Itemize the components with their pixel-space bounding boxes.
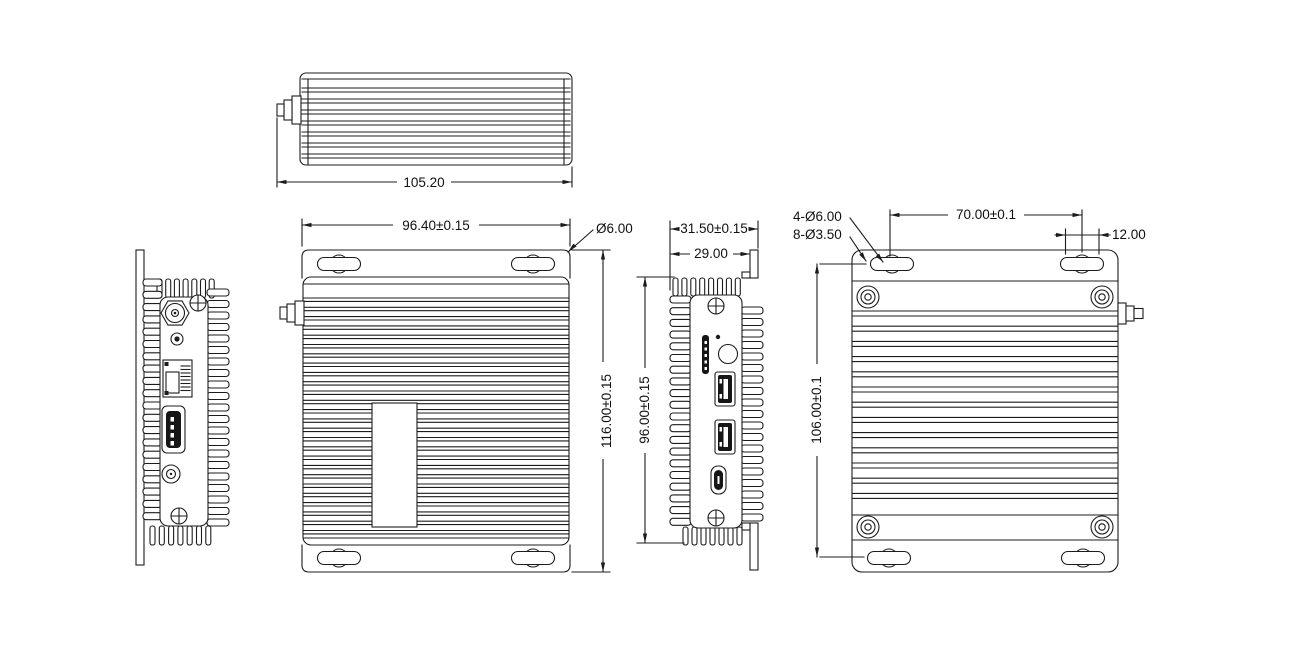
mounting-bracket-tab [750, 523, 758, 570]
antenna-connector-icon [277, 96, 301, 124]
antenna-connector-icon [280, 301, 304, 325]
dim-front-width: 96.40±0.15 [402, 218, 469, 233]
chassis-body [300, 73, 572, 165]
ethernet-port-icon [163, 360, 192, 397]
dim-side-depth-overall: 31.50±0.15 [680, 221, 747, 236]
dim-hole-spacing-horizontal: 70.00±0.1 [956, 207, 1016, 222]
label-area [372, 403, 417, 527]
screw-icon [190, 295, 206, 311]
left-side-view [136, 250, 229, 565]
reset-hole-icon [716, 335, 720, 339]
hdmi-port-icon [162, 406, 185, 453]
dim-side-depth-body: 29.00 [694, 246, 728, 261]
technical-drawing: 105.20 [0, 0, 1300, 650]
note-mount-hole-small: 8-Ø3.50 [793, 227, 842, 242]
dim-mount-hole-dia: Ø6.00 [596, 221, 633, 236]
dim-hole-spacing-vertical: 106.00±0.1 [809, 376, 824, 443]
dim-front-height: 116.00±0.15 [599, 374, 614, 448]
heatsink-fins [150, 526, 211, 545]
screw-icon [708, 298, 724, 314]
note-mount-hole-large: 4-Ø6.00 [793, 209, 842, 224]
usb-c-port-icon [711, 466, 726, 494]
mechanical-drawing-page: 105.20 [0, 0, 1300, 650]
chassis-body [852, 250, 1118, 572]
antenna-connector-icon [1118, 303, 1143, 324]
heatsink-fins [143, 279, 162, 520]
heatsink-fins [670, 296, 691, 525]
dim-side-body-height: 96.00±0.15 [637, 376, 652, 443]
dim-overall-length: 105.20 [403, 175, 444, 190]
screw-icon [171, 508, 187, 524]
right-side-view: 31.50±0.15 29.00 96.00±0.15 [637, 221, 763, 570]
usb-port-icon [715, 420, 735, 454]
usb-port-icon [715, 372, 735, 406]
front-view: 96.40±0.15 Ø6.00 116.00±0.15 [280, 217, 633, 572]
top-view: 105.20 [277, 73, 572, 190]
chassis-body [303, 277, 569, 545]
sim-slot-icon [702, 335, 709, 374]
heatsink-fins [673, 278, 740, 296]
heatsink-fins [741, 307, 763, 521]
mounting-bracket-tab [750, 250, 758, 278]
heatsink-fins [207, 289, 229, 526]
heatsink-fins [683, 527, 742, 545]
heatsink-fins [157, 279, 214, 298]
rear-view: 4-Ø6.00 8-Ø3.50 70.00±0.1 12.00 106.00±0… [793, 207, 1146, 572]
screw-icon [708, 510, 724, 526]
dim-slot-length: 12.00 [1112, 227, 1146, 242]
